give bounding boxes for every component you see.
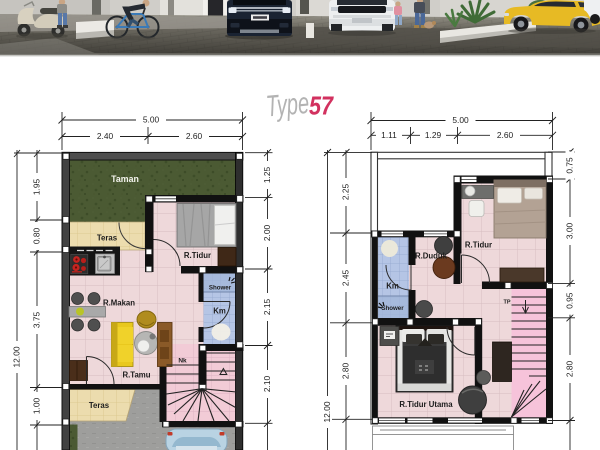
svg-text:Teras: Teras (89, 401, 110, 410)
svg-text:1.25: 1.25 (262, 167, 272, 184)
svg-text:5.00: 5.00 (143, 115, 160, 125)
svg-text:R.Tidur Utama: R.Tidur Utama (399, 400, 453, 409)
svg-text:0.80: 0.80 (32, 228, 42, 245)
svg-text:R.Tidur: R.Tidur (465, 241, 492, 250)
svg-text:2.15: 2.15 (262, 299, 272, 316)
svg-text:5.00: 5.00 (452, 115, 469, 125)
svg-text:2.80: 2.80 (341, 363, 351, 380)
svg-text:R.Makan: R.Makan (103, 299, 135, 308)
svg-text:3.75: 3.75 (32, 312, 42, 329)
svg-text:R.Tidur: R.Tidur (184, 251, 211, 260)
svg-text:57: 57 (309, 91, 334, 121)
svg-text:0.75: 0.75 (565, 157, 575, 174)
svg-text:2.80: 2.80 (565, 361, 575, 378)
svg-text:Km: Km (386, 282, 399, 291)
svg-text:R.Tamu: R.Tamu (122, 371, 150, 380)
svg-text:2.10: 2.10 (262, 376, 272, 393)
svg-text:12.00: 12.00 (322, 401, 332, 422)
svg-text:Taman: Taman (111, 174, 139, 184)
svg-text:1.00: 1.00 (32, 398, 42, 415)
svg-text:TP: TP (503, 300, 510, 306)
svg-text:1.11: 1.11 (381, 130, 397, 140)
svg-text:12.00: 12.00 (12, 346, 22, 367)
svg-text:3.00: 3.00 (565, 223, 575, 240)
svg-text:Teras: Teras (97, 234, 118, 243)
svg-text:2.25: 2.25 (341, 184, 351, 201)
svg-text:R.Duduk: R.Duduk (415, 252, 448, 261)
svg-text:Shower: Shower (209, 285, 232, 292)
svg-text:2.60: 2.60 (186, 131, 203, 141)
svg-text:2.40: 2.40 (97, 131, 114, 141)
svg-text:2.00: 2.00 (262, 225, 272, 242)
svg-text:Shower: Shower (381, 305, 404, 312)
svg-text:1.29: 1.29 (425, 130, 442, 140)
svg-text:Km: Km (213, 307, 226, 316)
svg-text:Type: Type (265, 87, 311, 124)
svg-text:2.60: 2.60 (497, 130, 514, 140)
svg-text:Nk: Nk (178, 358, 187, 365)
svg-text:0.95: 0.95 (565, 292, 575, 309)
svg-text:2.45: 2.45 (341, 270, 351, 287)
svg-text:1.95: 1.95 (32, 179, 42, 196)
